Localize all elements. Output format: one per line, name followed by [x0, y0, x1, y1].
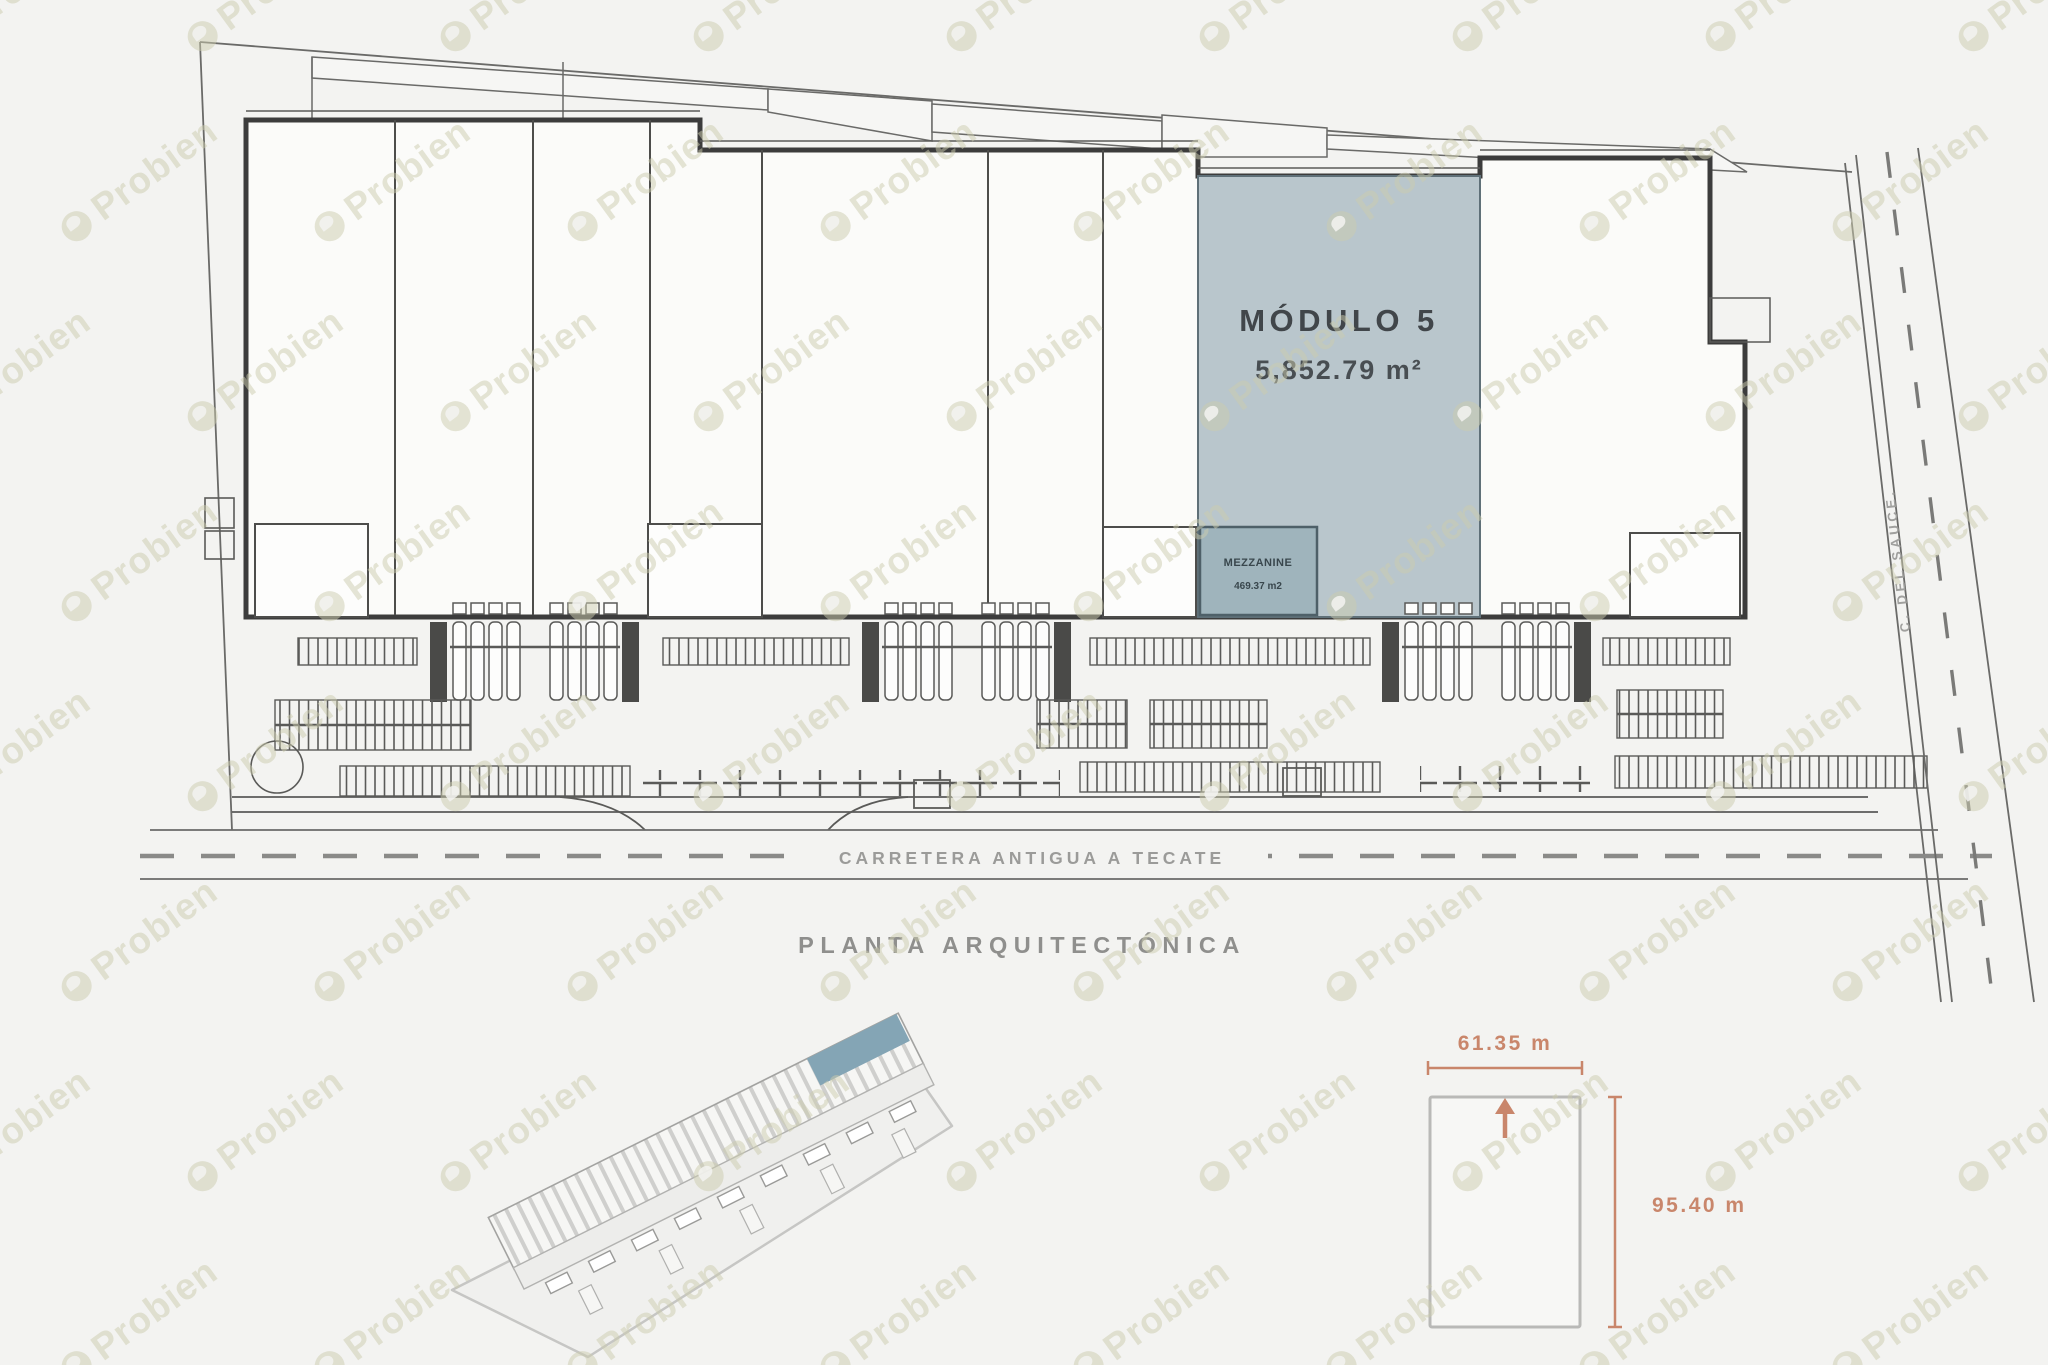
plan-title: PLANTA ARQUITECTÓNICA: [798, 931, 1246, 958]
mezzanine-name: MEZZANINE: [1224, 557, 1293, 569]
render-3d: [452, 1013, 957, 1357]
dim-height-label: 95.40 m: [1652, 1194, 1747, 1217]
road-carretera: CARRETERA ANTIGUA A TECATE: [140, 830, 1992, 879]
road-sauce: C. DEL SAUCE.: [1856, 148, 2034, 1002]
road-carretera-label: CARRETERA ANTIGUA A TECATE: [839, 848, 1225, 868]
floor-plan-drawing: MÓDULO 5 5,852.79 m² MEZZANINE 469.37 m2: [0, 0, 2048, 1365]
building-outline: [246, 120, 1745, 617]
road-sauce-label: C. DEL SAUCE.: [1882, 488, 1913, 633]
mezzanine: MEZZANINE 469.37 m2: [1200, 527, 1317, 615]
module-5-name: MÓDULO 5: [1239, 302, 1439, 338]
dim-width-label: 61.35 m: [1458, 1032, 1553, 1055]
parking-combs: [275, 638, 1927, 796]
dimension-diagram: 61.35 m 95.40 m: [1428, 1032, 1747, 1327]
module-5-area: 5,852.79 m²: [1255, 355, 1423, 385]
floor-plan-page: MÓDULO 5 5,852.79 m² MEZZANINE 469.37 m2: [0, 0, 2048, 1365]
mezzanine-area: 469.37 m2: [1234, 581, 1282, 592]
